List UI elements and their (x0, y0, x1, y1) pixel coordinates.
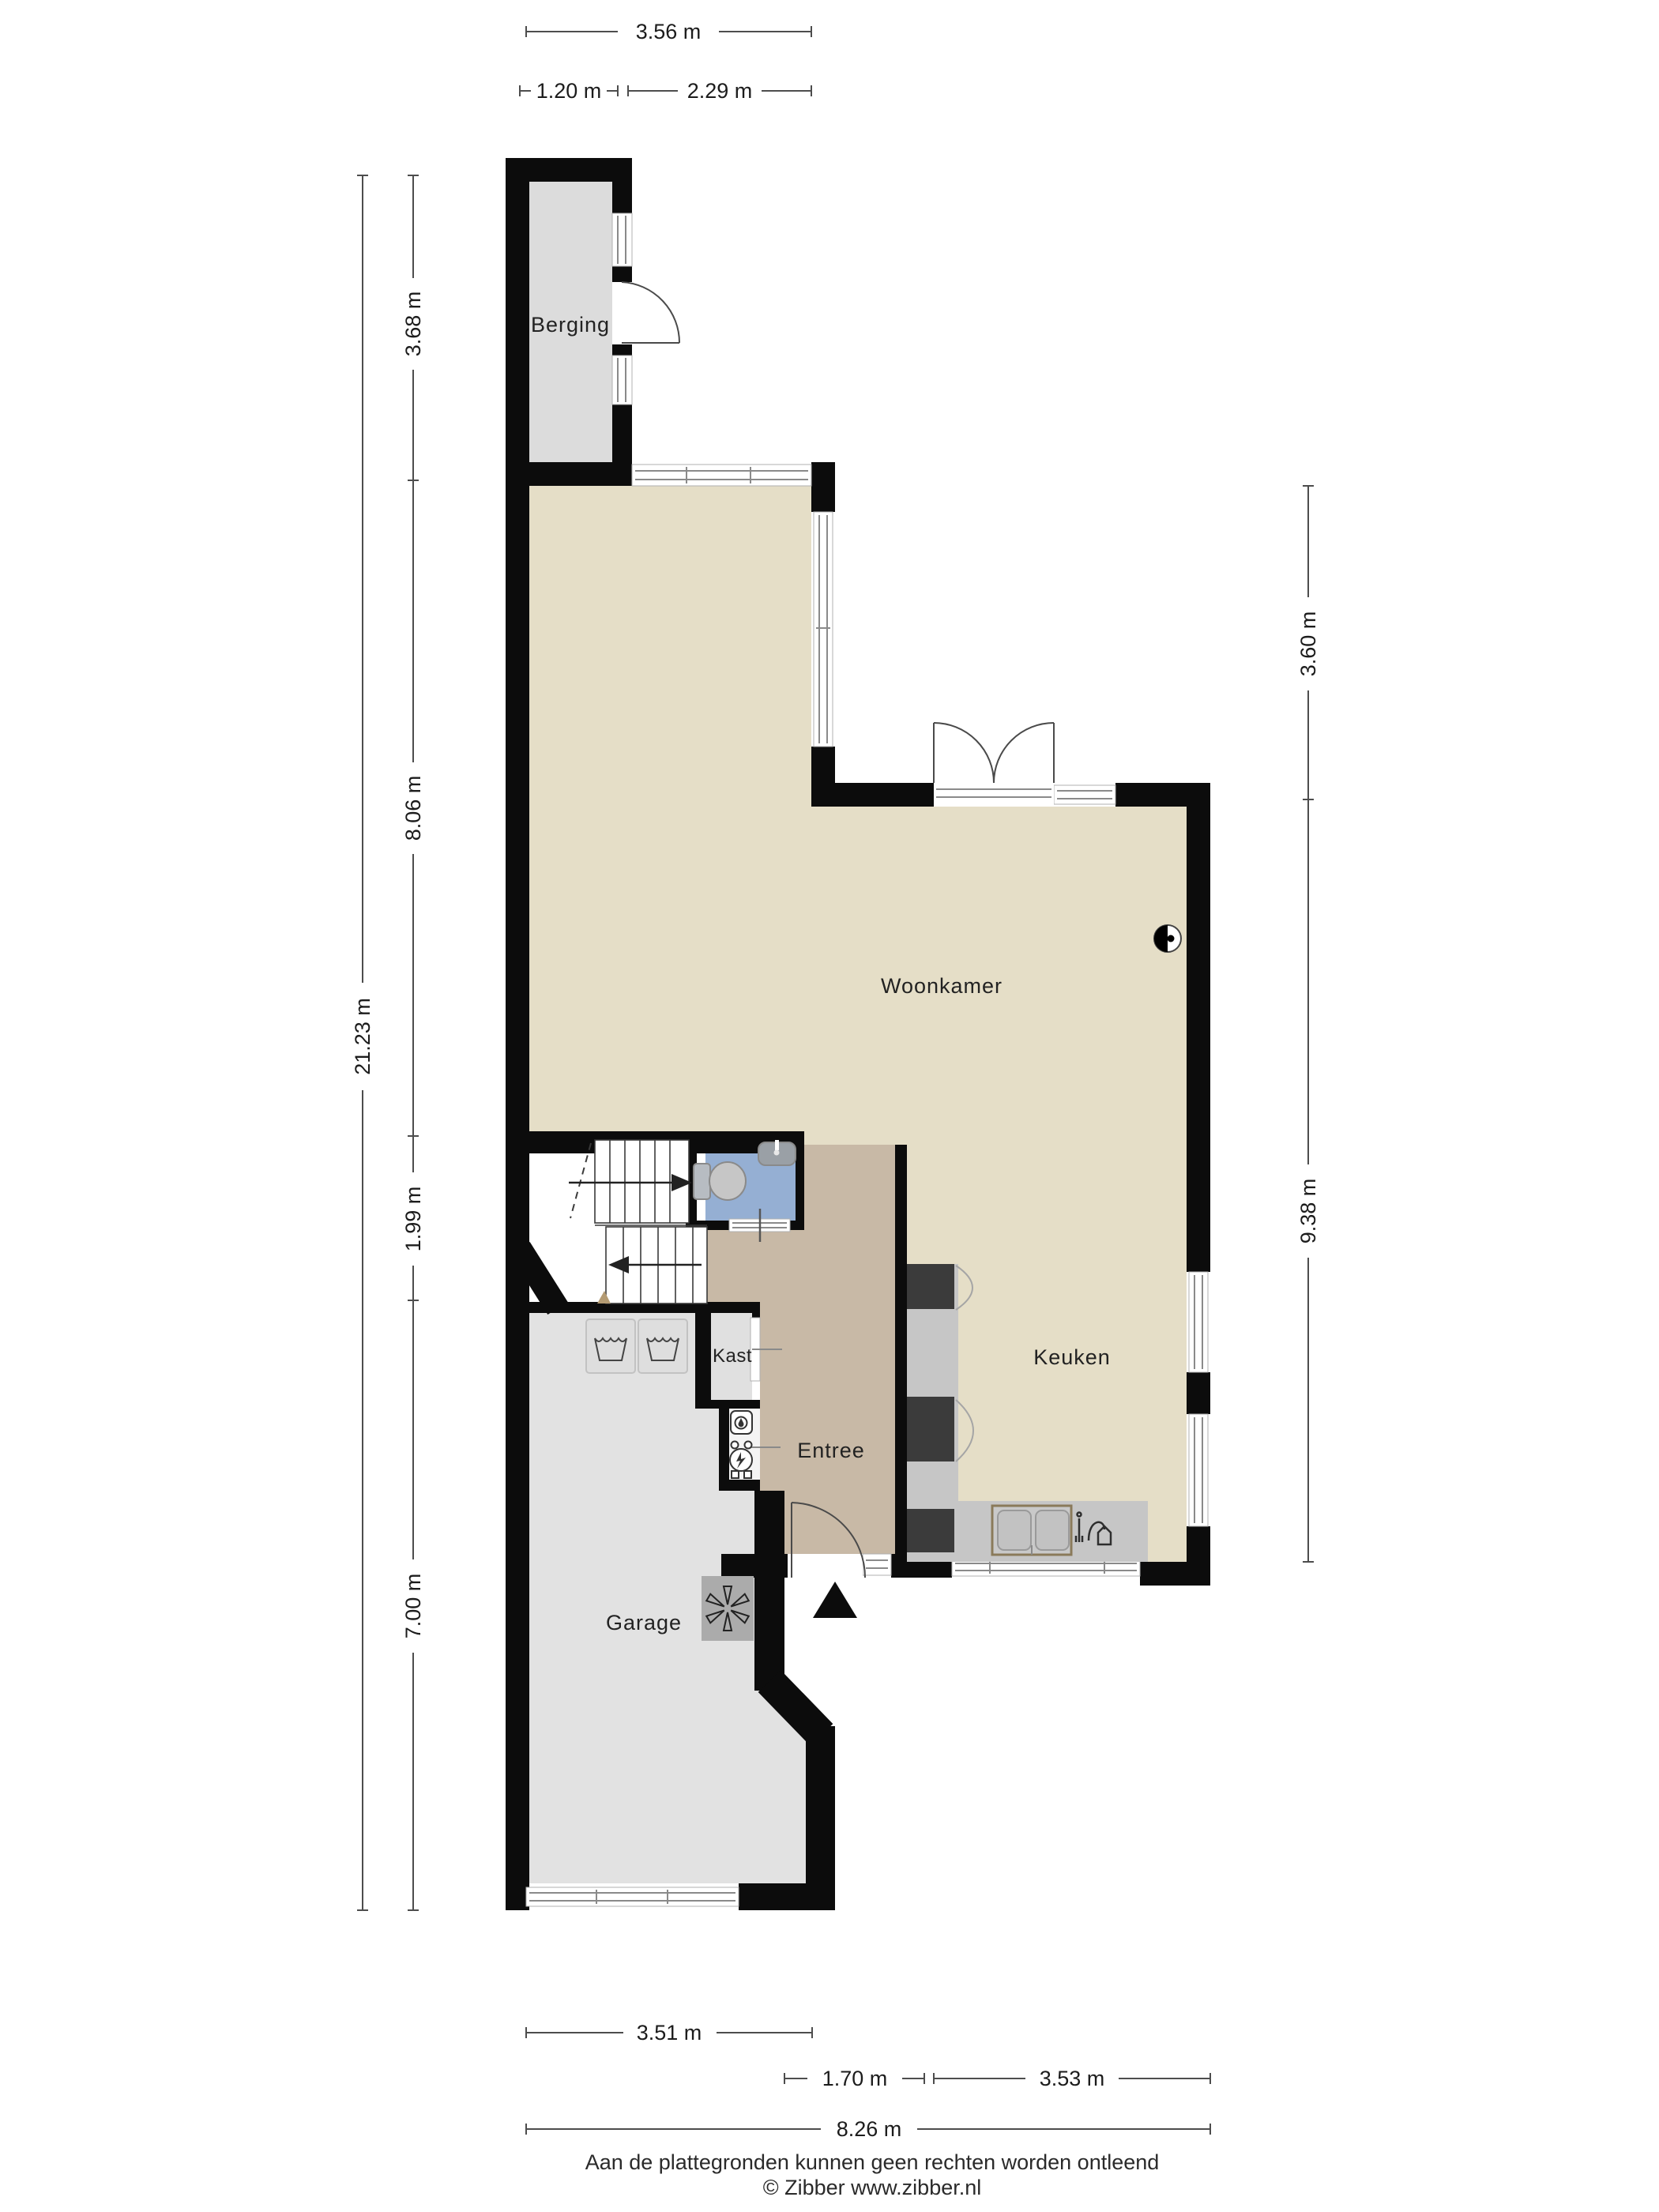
appliance-block (907, 1397, 954, 1461)
boiler-fan-icon (702, 1576, 754, 1641)
kitchen-sink-icon (992, 1506, 1071, 1555)
dim-left-stairs: 1.99 m (401, 1136, 425, 1300)
washing-machine-icon (586, 1319, 635, 1373)
dim-left-living: 8.06 m (401, 480, 425, 1136)
footer-disclaimer: Aan de plattegronden kunnen geen rechten… (585, 2150, 1160, 2174)
room-label-kast: Kast (713, 1345, 752, 1367)
svg-text:7.00 m: 7.00 m (401, 1574, 425, 1639)
svg-text:8.06 m: 8.06 m (401, 776, 425, 841)
svg-text:9.38 m: 9.38 m (1296, 1179, 1320, 1244)
floor-plan-canvas: Berging Woonkamer Keuken Kast Entree Gar… (0, 0, 1659, 2212)
dim-right-lower: 9.38 m (1296, 799, 1320, 1562)
floor-plan-page: Berging Woonkamer Keuken Kast Entree Gar… (0, 0, 1659, 2212)
appliance-block (907, 1509, 954, 1552)
ceiling-light-icon (1154, 925, 1181, 952)
svg-text:2.29 m: 2.29 m (687, 79, 753, 103)
appliance-block (907, 1264, 954, 1309)
svg-text:3.53 m: 3.53 m (1040, 2067, 1105, 2090)
dim-bottom-garage: 3.51 m (526, 2021, 812, 2045)
room-label-garage: Garage (606, 1611, 682, 1635)
footer-credit: © Zibber www.zibber.nl (763, 2176, 982, 2199)
room-label-keuken: Keuken (1033, 1345, 1111, 1369)
svg-text:8.26 m: 8.26 m (837, 2117, 902, 2141)
dim-left-berging: 3.68 m (401, 175, 425, 480)
toilet-icon (709, 1162, 746, 1200)
room-label-woonkamer: Woonkamer (881, 974, 1003, 998)
dim-left-total: 21.23 m (351, 175, 374, 1910)
entrance-arrow-icon (813, 1582, 857, 1618)
svg-text:3.60 m: 3.60 m (1296, 611, 1320, 677)
room-label-berging: Berging (531, 313, 610, 337)
dim-left-garage: 7.00 m (401, 1300, 425, 1910)
dim-top-passage: 2.29 m (628, 79, 811, 103)
berging-door (612, 282, 679, 344)
washing-machine-icon (638, 1319, 687, 1373)
svg-text:3.68 m: 3.68 m (401, 292, 425, 357)
toilet-tank-icon (694, 1164, 710, 1199)
dim-top-total: 3.56 m (526, 20, 811, 43)
svg-text:3.56 m: 3.56 m (636, 20, 702, 43)
svg-text:1.99 m: 1.99 m (401, 1187, 425, 1252)
dim-bottom-kitchen: 3.53 m (934, 2067, 1210, 2090)
entree-floor (804, 1145, 895, 1236)
dim-bottom-entrance: 1.70 m (784, 2067, 924, 2090)
french-doors (934, 723, 1054, 807)
room-label-entree: Entree (797, 1439, 865, 1462)
dim-top-berging: 1.20 m (520, 79, 618, 103)
svg-text:1.70 m: 1.70 m (822, 2067, 888, 2090)
svg-text:3.51 m: 3.51 m (637, 2021, 702, 2045)
dim-right-upper: 3.60 m (1296, 486, 1320, 799)
footer: Aan de plattegronden kunnen geen rechten… (585, 2150, 1160, 2199)
svg-text:21.23 m: 21.23 m (351, 998, 374, 1075)
svg-text:1.20 m: 1.20 m (536, 79, 602, 103)
dim-bottom-total: 8.26 m (526, 2117, 1210, 2141)
entree-floor (705, 1228, 895, 1314)
water-meter-icon (731, 1411, 752, 1434)
